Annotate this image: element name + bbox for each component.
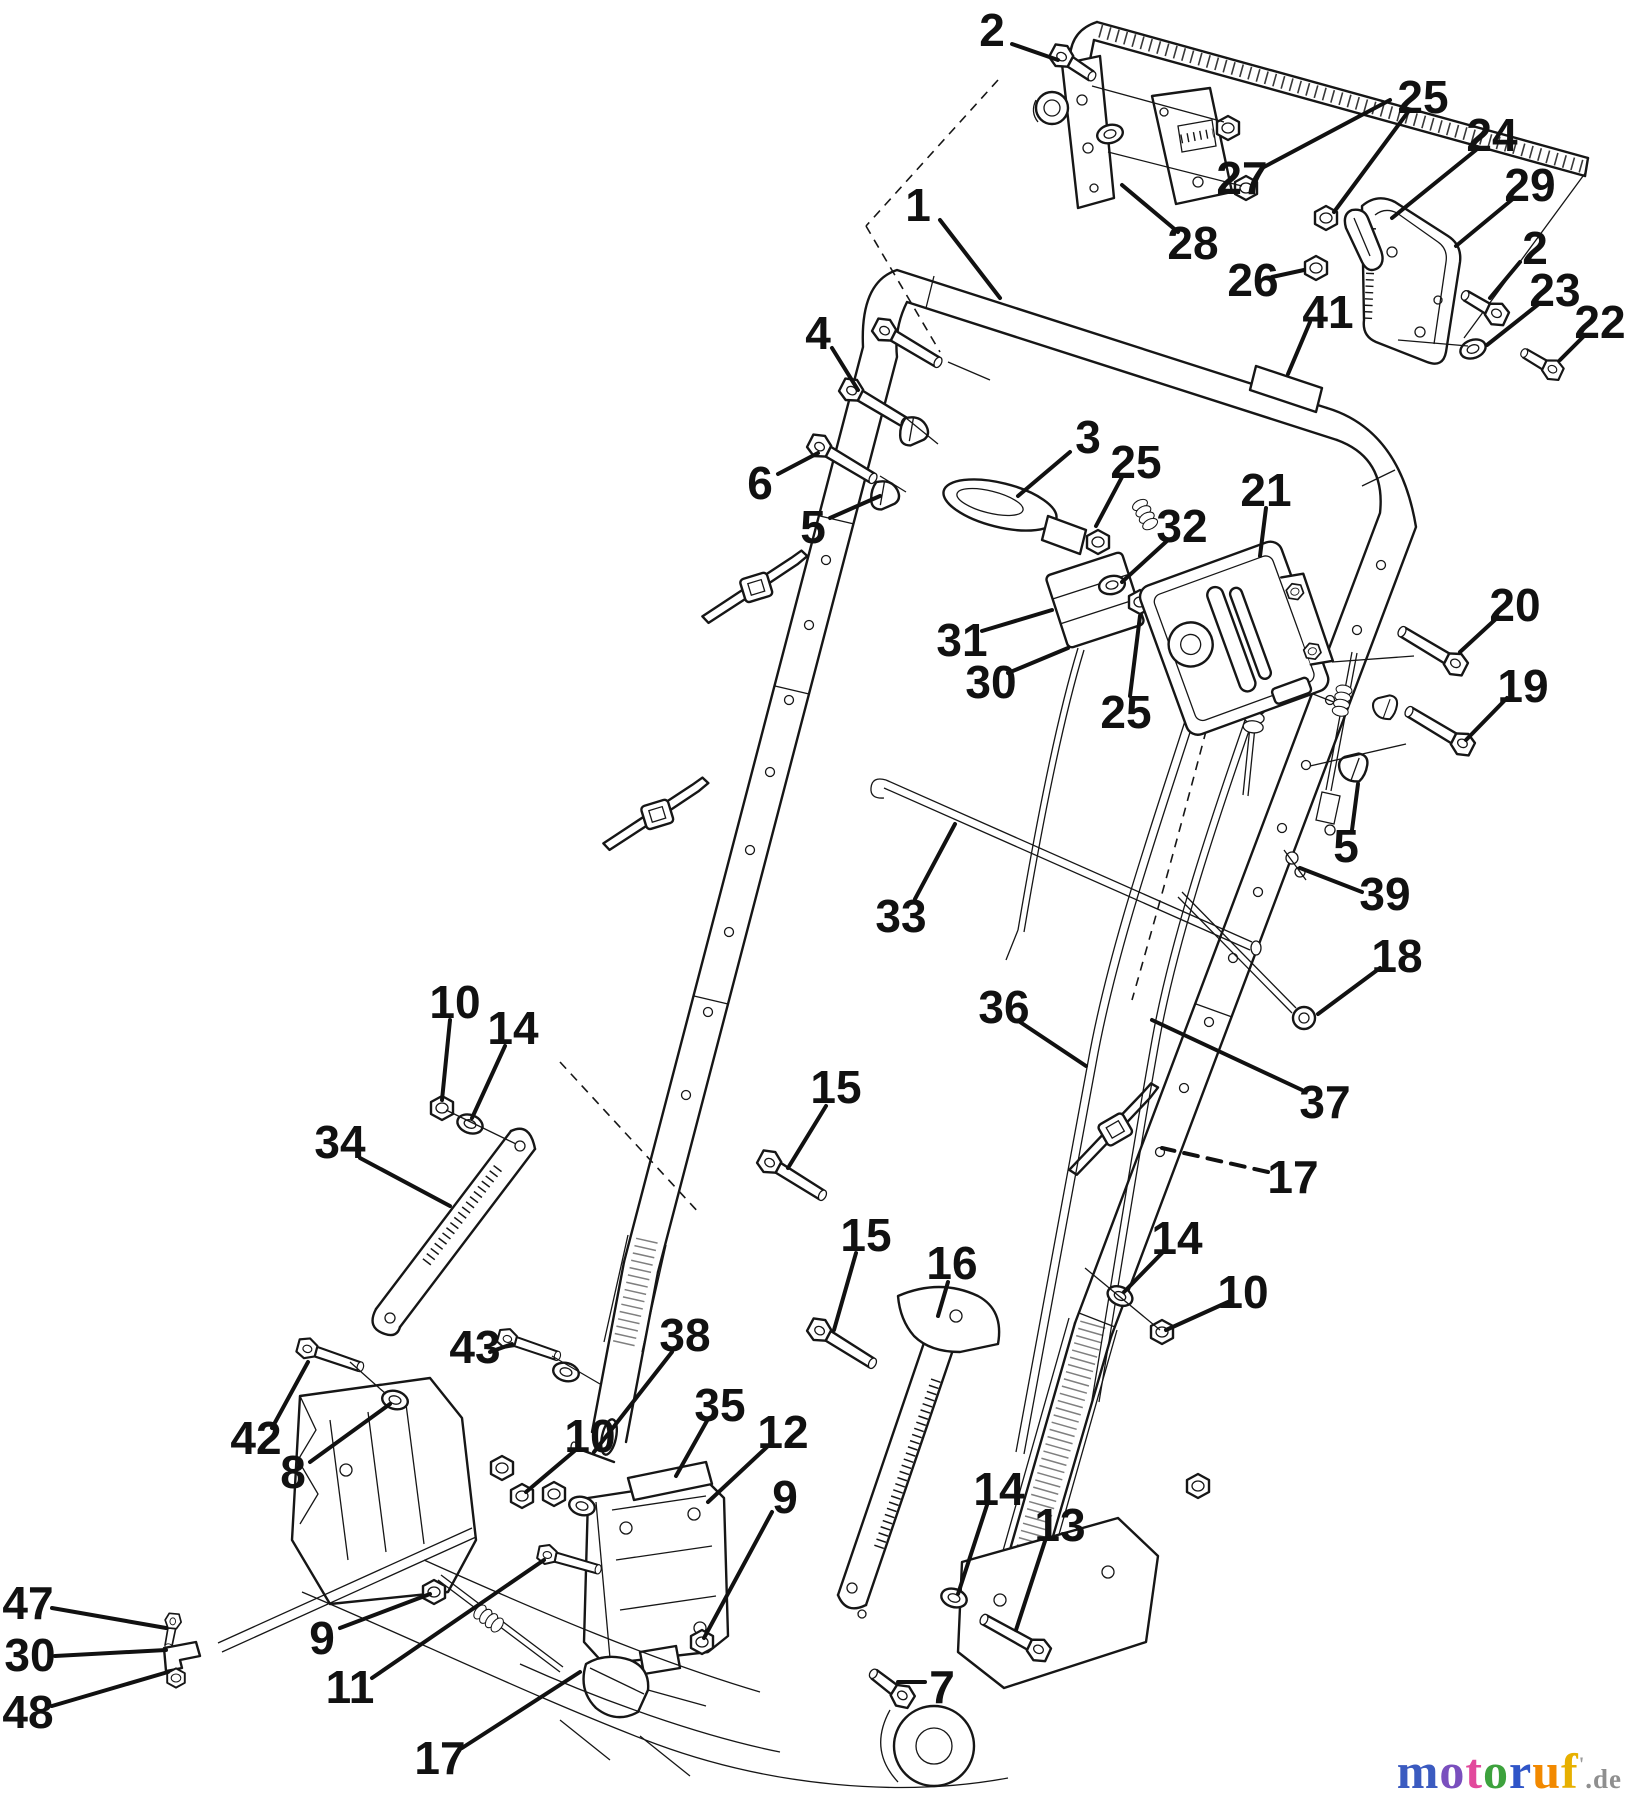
deck-brackets (292, 1327, 728, 1717)
callout-34-45: 34 (314, 1116, 366, 1168)
throttle-lever-group (938, 470, 1109, 554)
callout-21-29: 21 (1240, 464, 1291, 516)
callout-38-49: 38 (659, 1309, 710, 1361)
callout-15-21: 15 (810, 1061, 861, 1113)
callout-17-24: 17 (1267, 1151, 1318, 1203)
watermark-suffix: .de (1585, 1764, 1622, 1794)
leader-line-14-18 (472, 1046, 505, 1118)
leader-line-2-2 (1490, 262, 1520, 298)
callout-47-54: 47 (2, 1577, 53, 1629)
callout-9-11: 9 (772, 1471, 798, 1523)
callout-15-22: 15 (840, 1209, 891, 1261)
callout-20-28: 20 (1489, 579, 1540, 631)
leader-line-33-44 (915, 824, 955, 899)
callout-14-19: 14 (1151, 1212, 1203, 1264)
leader-line-30-40 (1008, 648, 1068, 673)
callout-30-41: 30 (4, 1629, 55, 1681)
leader-line-38-49 (594, 1352, 672, 1452)
parts-diagram-page: 1223455678991010101112131414141515161717… (0, 0, 1630, 1800)
callout-28-38: 28 (1167, 217, 1218, 269)
callout-32-43: 32 (1156, 500, 1207, 552)
callout-14-18: 14 (487, 1002, 539, 1054)
callout-36-47: 36 (978, 981, 1029, 1033)
callout-35-46: 35 (694, 1379, 745, 1431)
watermark-letter: o (1483, 1743, 1509, 1799)
watermark-letter: o (1439, 1743, 1465, 1799)
leader-line-48-55 (52, 1672, 168, 1706)
watermark-letter: t (1465, 1743, 1483, 1799)
watermark-letter: u (1532, 1743, 1561, 1799)
callout-16-23: 16 (926, 1237, 977, 1289)
callout-4-4: 4 (805, 307, 831, 359)
callout-10-12: 10 (429, 976, 480, 1028)
callout-7-8: 7 (929, 1661, 955, 1713)
callout-33-44: 33 (875, 890, 926, 942)
tie-strap-lower (593, 776, 718, 851)
watermark-letter: r (1509, 1743, 1532, 1799)
callout-3-3: 3 (1075, 411, 1101, 463)
tie-strap-upper (692, 549, 817, 624)
callout-41-51: 41 (1302, 286, 1353, 338)
callout-18-26: 18 (1371, 930, 1422, 982)
grip-sticker (1250, 366, 1322, 412)
left-support-strap (373, 1096, 535, 1335)
callout-39-50: 39 (1359, 868, 1410, 920)
leader-line-36-47 (1020, 1022, 1086, 1066)
callout-25-33: 25 (1397, 71, 1448, 123)
callout-43-53: 43 (449, 1321, 500, 1373)
leader-line-27-37 (1262, 100, 1390, 168)
callout-48-55: 48 (2, 1686, 53, 1738)
leader-line-30-41 (55, 1650, 166, 1656)
callout-6-7: 6 (747, 457, 773, 509)
leader-line-15-22 (834, 1253, 856, 1330)
callout-29-39: 29 (1504, 159, 1555, 211)
callout-2-1: 2 (979, 4, 1005, 56)
leader-line-17-25 (462, 1672, 580, 1748)
leader-line-6-7 (778, 453, 818, 474)
leader-line-34-45 (360, 1158, 450, 1206)
callout-26-36: 26 (1227, 254, 1278, 306)
callout-9-10: 9 (309, 1612, 335, 1664)
callout-17-25: 17 (414, 1732, 465, 1784)
callout-42-52: 42 (230, 1412, 281, 1464)
cable-clamp (584, 1657, 649, 1717)
callout-19-27: 19 (1497, 660, 1548, 712)
leader-line-47-54 (52, 1608, 166, 1628)
callout-11-15: 11 (326, 1661, 375, 1713)
callout-27-37: 27 (1216, 152, 1267, 204)
tie-strap-right (1052, 1081, 1175, 1176)
callout-14-20: 14 (973, 1463, 1025, 1515)
callout-8-9: 8 (280, 1446, 306, 1498)
leader-line-25-33 (1334, 112, 1408, 212)
callout-1-0: 1 (905, 179, 931, 231)
shift-rod (871, 779, 1261, 955)
reference-lines (560, 80, 1250, 1214)
leader-line-10-12 (442, 1020, 450, 1100)
watermark-logo: motoruf'.de (1397, 1746, 1622, 1796)
exploded-parts-diagram: 1223455678991010101112131414141515161717… (0, 0, 1630, 1800)
callout-5-6: 5 (1333, 820, 1359, 872)
leader-line-3-3 (1018, 452, 1070, 496)
leader-line-31-42 (982, 610, 1052, 631)
watermark-letter: f (1561, 1743, 1579, 1799)
callout-25-35: 25 (1100, 686, 1151, 738)
callout-25-34: 25 (1110, 436, 1161, 488)
callout-5-5: 5 (800, 501, 826, 553)
control-module (1137, 534, 1343, 738)
watermark-letter: m (1397, 1743, 1440, 1799)
callout-37-48: 37 (1299, 1076, 1350, 1128)
callout-31-42: 31 (936, 614, 987, 666)
cable-ties (593, 549, 1175, 1176)
leader-line-24-32 (1392, 150, 1476, 218)
callout-24-32: 24 (1466, 109, 1518, 161)
callout-23-31: 23 (1529, 264, 1580, 316)
callout-22-30: 22 (1574, 296, 1625, 348)
callout-13-17: 13 (1034, 1499, 1085, 1551)
callout-12-16: 12 (757, 1406, 808, 1458)
handlebar (592, 270, 1416, 1648)
callout-10-14: 10 (1217, 1266, 1268, 1318)
leader-line-15-21 (788, 1106, 826, 1168)
